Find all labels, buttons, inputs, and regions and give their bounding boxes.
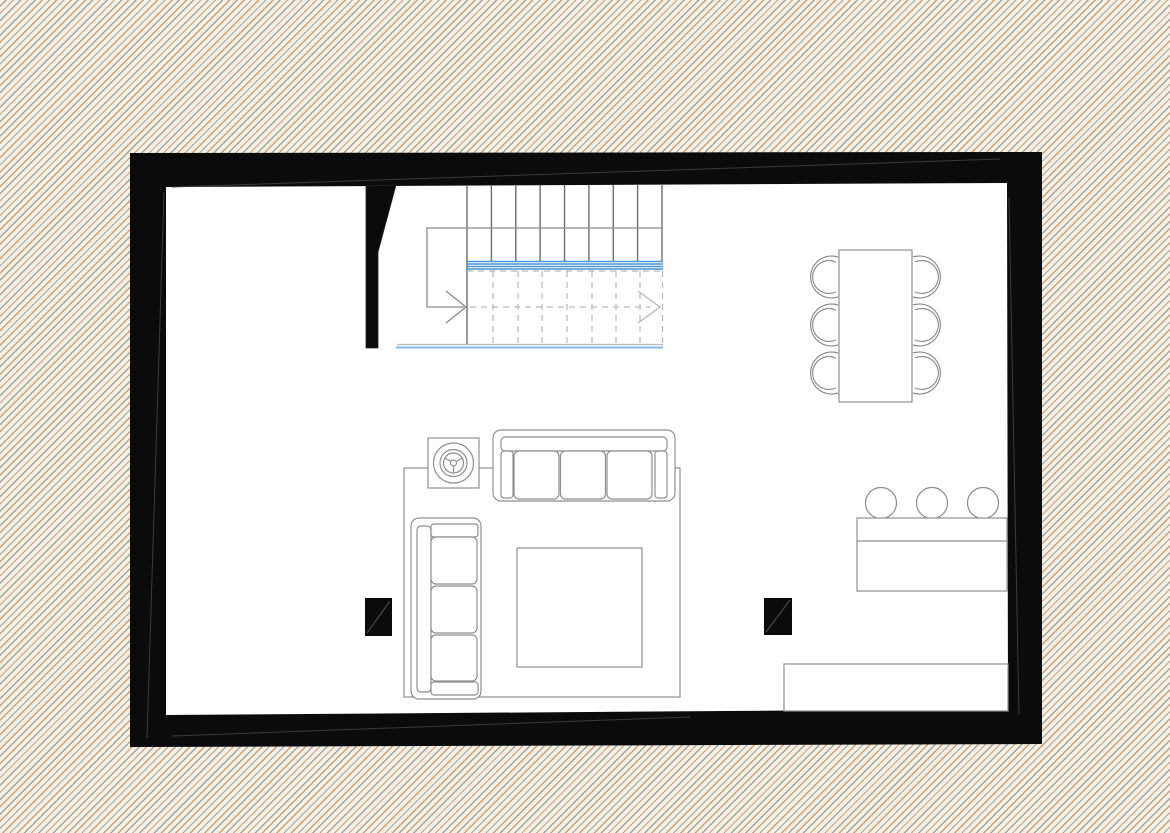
bar-counter — [857, 518, 1007, 591]
sofa-armrest — [431, 682, 478, 695]
living-area — [404, 430, 680, 699]
sofa-cushion — [561, 451, 606, 499]
sofa-cushion — [607, 451, 652, 499]
sofa-cushion — [431, 586, 477, 633]
plant-stand — [428, 438, 479, 488]
coffee-table — [517, 548, 642, 667]
sofa-back — [501, 437, 667, 451]
sofa-cushion — [514, 451, 559, 499]
sofa-cushion — [431, 635, 477, 681]
potted-plant — [428, 438, 479, 488]
floor-plan-canvas — [0, 0, 1170, 833]
kitchen-counter-bottom — [784, 664, 1008, 711]
sofa-armrest — [501, 451, 513, 498]
sofa-three-seat-left — [411, 518, 481, 699]
sofa-back — [417, 526, 431, 692]
plan-background-hatch — [0, 0, 1170, 833]
dining-table — [839, 250, 912, 402]
sofa-armrest — [431, 524, 478, 537]
column — [365, 598, 392, 636]
column — [764, 598, 792, 635]
sofa-three-seat-top — [493, 430, 675, 501]
sofa-armrest — [655, 451, 667, 498]
sofa-cushion — [431, 537, 477, 584]
